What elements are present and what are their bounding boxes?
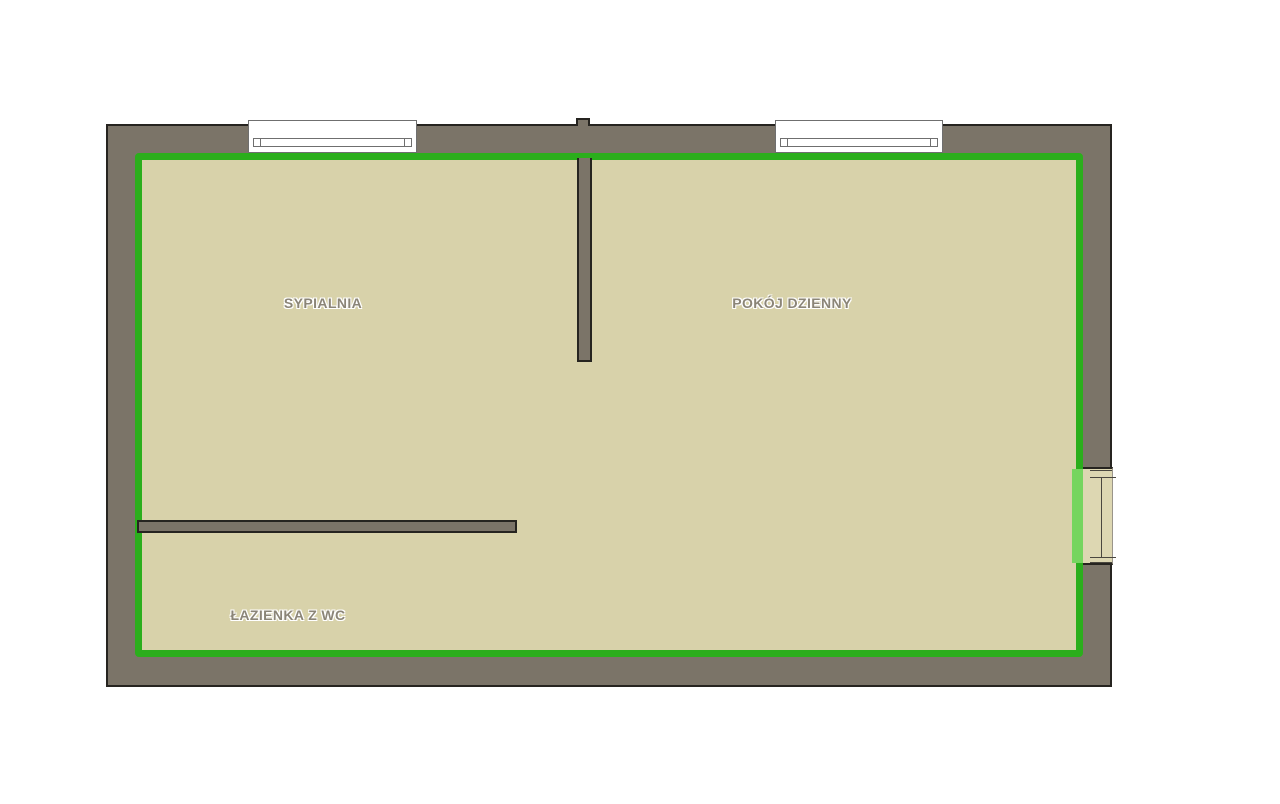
wall-junction-notch (576, 118, 590, 126)
partition-wall-bedroom-living (577, 158, 592, 362)
door-jamb-line (1090, 557, 1116, 558)
door-threshold-highlight (1072, 469, 1083, 563)
window-icon (248, 120, 417, 153)
door-jamb-line (1090, 470, 1112, 471)
floor-plan-canvas: SYPIALNIA POKÓJ DZIENNY ŁAZIENKA Z WC (0, 0, 1280, 804)
door-jamb-line (1090, 477, 1116, 478)
window-frame-tick (787, 139, 788, 146)
door-opening (1083, 467, 1113, 565)
window-icon (775, 120, 943, 153)
door-jamb-line (1090, 562, 1112, 563)
room-label-pokoj-dzienny: POKÓJ DZIENNY (732, 295, 852, 311)
room-label-sypialnia: SYPIALNIA (284, 295, 362, 311)
floor-area (135, 153, 1083, 657)
room-label-lazienka-z-wc: ŁAZIENKA Z WC (230, 607, 345, 623)
door-leaf-line (1101, 477, 1102, 557)
partition-wall-bathroom (137, 520, 517, 533)
window-frame-tick (260, 139, 261, 146)
window-frame (253, 138, 412, 147)
window-frame-tick (930, 139, 931, 146)
window-frame-tick (404, 139, 405, 146)
window-frame (780, 138, 938, 147)
